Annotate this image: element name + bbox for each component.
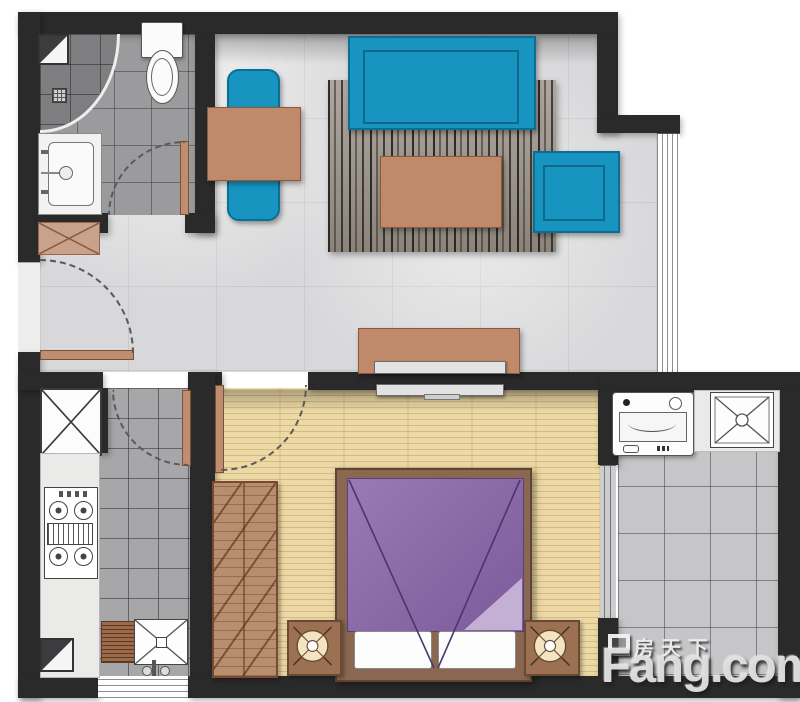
x-mark-icon [711,393,773,447]
wall-bottom-left [18,676,98,698]
drain-fold [40,36,67,63]
kitchen-window [98,676,188,698]
washer-door-curve [628,415,676,432]
tap-icon [41,190,48,194]
side-table-inner [543,165,605,221]
toilet-bowl-inner [151,58,173,96]
bed [335,468,532,682]
lamp-icon [289,622,336,670]
floor-drain-icon [40,638,74,672]
wall-bath-bottom-right [185,213,215,233]
burner-icon [74,501,93,520]
side-table [533,151,620,233]
shoe-cabinet [38,222,100,255]
faucet-knob [142,666,152,676]
washer-dial [669,397,682,410]
wall-topright-horizontal [597,115,680,133]
wardrobe-divider [243,483,245,676]
outside-area [618,0,660,115]
wall-left-upper [18,12,40,262]
floor-drain-icon [38,34,69,65]
wall-top [18,12,618,34]
dining-table [207,107,301,181]
wardrobe [212,481,278,678]
washing-machine [612,392,694,456]
kitchen-shaft-box [40,388,102,456]
shower-drain [52,88,67,103]
washer-door [619,412,687,442]
blanket-fold-lines [337,470,530,680]
sink-drainboard [101,621,136,663]
stove-knobs [59,491,89,497]
wall-balcony-top [600,372,800,392]
living-window [657,133,680,374]
x-mark-icon [39,223,99,254]
sofa-seat [363,50,519,124]
basin-drain [59,166,73,180]
washer-buttons [657,446,669,451]
sink-drain [156,637,167,648]
nightstand-right [524,620,580,676]
faucet-knob [160,666,170,676]
nightstand-left [287,620,342,676]
washer-power-dot [623,399,630,406]
coffee-table [380,156,502,228]
lamp-icon [526,622,574,670]
entry-opening [18,262,40,354]
balcony-sliding-door [600,465,616,620]
living-tv [374,361,506,374]
tap-icon [41,150,48,154]
gas-stove [44,487,98,579]
washer-handle [623,445,639,453]
burner-icon [49,547,68,566]
burner-icon [74,547,93,566]
toilet-bowl [146,50,179,104]
kitchen-faucet [152,660,156,676]
x-mark-icon [42,390,100,454]
floor-plan: 房天下 Fang.com [0,0,800,702]
kitchen-sink [134,619,188,665]
wall-left-lower [18,352,40,698]
bedroom-tv-stand [424,394,460,400]
utility-sink [710,392,774,448]
sofa [348,36,536,130]
burner-icon [49,501,68,520]
watermark-english: Fang.com [601,638,800,694]
drain-fold [42,640,72,670]
vanity-sink [38,133,102,215]
stove-rack [47,523,93,545]
